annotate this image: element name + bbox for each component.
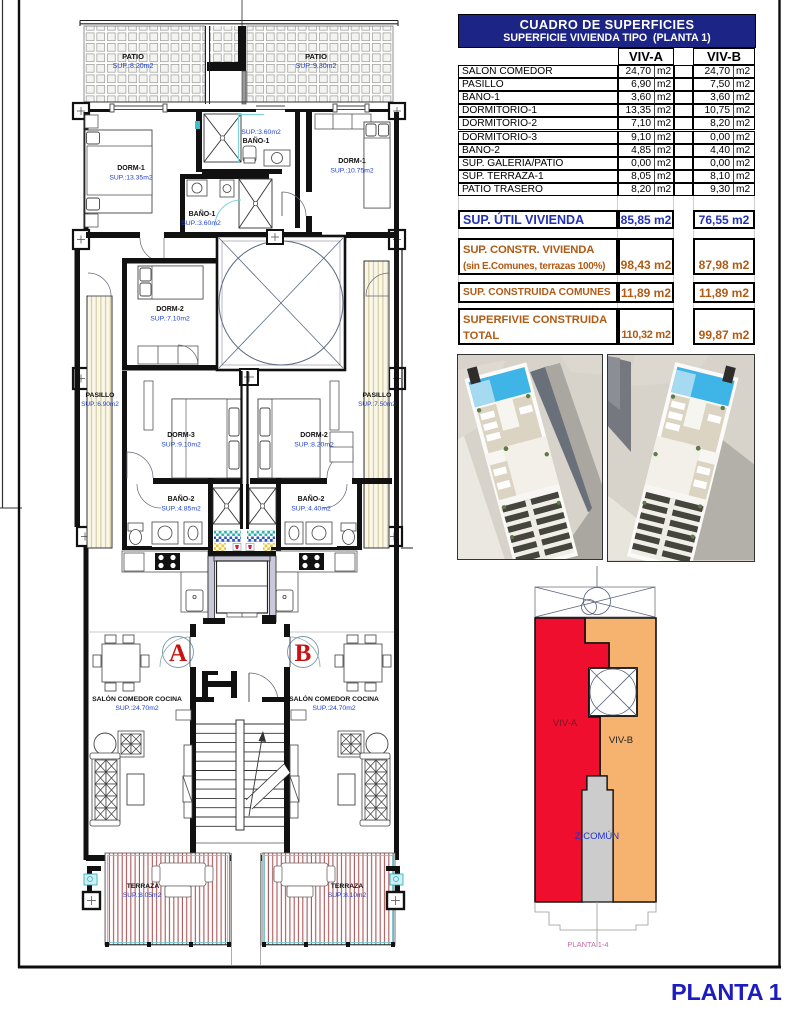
svg-text:DORM-1: DORM-1 xyxy=(117,165,145,172)
svg-text:SUP.:24.70m2: SUP.:24.70m2 xyxy=(115,705,159,712)
svg-text:SUP.:8.10m2: SUP.:8.10m2 xyxy=(328,892,367,899)
svg-text:BAÑO-2: BAÑO-2 xyxy=(168,494,195,503)
svg-text:SALÓN COMEDOR COCINA: SALÓN COMEDOR COCINA xyxy=(289,694,379,703)
svg-text:BAÑO-2: BAÑO-2 xyxy=(298,494,325,503)
svg-text:SUP.:7.10m2: SUP.:7.10m2 xyxy=(150,316,190,323)
svg-text:PATIO: PATIO xyxy=(122,52,144,61)
svg-text:VIV-B: VIV-B xyxy=(609,735,633,746)
svg-text:SUP.:24.70m2: SUP.:24.70m2 xyxy=(312,705,356,712)
svg-text:SUP.:8.20m2: SUP.:8.20m2 xyxy=(113,63,154,70)
svg-text:SUP.:4.85m2: SUP.:4.85m2 xyxy=(161,506,201,513)
svg-text:SUP.:8.20m2: SUP.:8.20m2 xyxy=(294,442,334,449)
svg-text:SUP.:6.90m2: SUP.:6.90m2 xyxy=(81,401,119,408)
svg-text:DORM-3: DORM-3 xyxy=(167,432,195,439)
svg-text:PASILLO: PASILLO xyxy=(363,392,392,399)
svg-text:SALÓN COMEDOR COCINA: SALÓN COMEDOR COCINA xyxy=(92,694,182,703)
svg-text:BAÑO-1: BAÑO-1 xyxy=(189,209,216,218)
svg-text:DORM-2: DORM-2 xyxy=(156,306,184,313)
svg-text:PLANTA 1-4: PLANTA 1-4 xyxy=(567,940,608,949)
svg-text:SUP.:7.50m2: SUP.:7.50m2 xyxy=(358,401,396,408)
svg-text:VIV-A: VIV-A xyxy=(553,718,578,729)
svg-text:SUP.:10.75m2: SUP.:10.75m2 xyxy=(330,168,374,175)
svg-text:TERRAZA: TERRAZA xyxy=(127,883,160,890)
svg-text:SUP.:4.40m2: SUP.:4.40m2 xyxy=(291,506,331,513)
svg-text:A: A xyxy=(169,640,187,667)
svg-text:PASILLO: PASILLO xyxy=(86,392,115,399)
svg-text:SUP.:13.35m2: SUP.:13.35m2 xyxy=(109,175,153,182)
svg-text:BAÑO-1: BAÑO-1 xyxy=(243,136,270,145)
svg-text:Z.COMÚN: Z.COMÚN xyxy=(575,831,619,842)
svg-text:TERRAZA: TERRAZA xyxy=(331,883,364,890)
svg-text:SUP.:9.30m2: SUP.:9.30m2 xyxy=(296,63,337,70)
svg-text:DORM-2: DORM-2 xyxy=(300,432,328,439)
svg-text:DORM-1: DORM-1 xyxy=(338,158,366,165)
svg-text:SUP.:3.60m2: SUP.:3.60m2 xyxy=(181,220,221,227)
svg-text:SUP.:3.60m2: SUP.:3.60m2 xyxy=(241,129,281,136)
svg-text:PATIO: PATIO xyxy=(305,52,327,61)
svg-text:SUP.:9.10m2: SUP.:9.10m2 xyxy=(161,442,201,449)
svg-text:SUP.:8.05m2: SUP.:8.05m2 xyxy=(123,892,162,899)
